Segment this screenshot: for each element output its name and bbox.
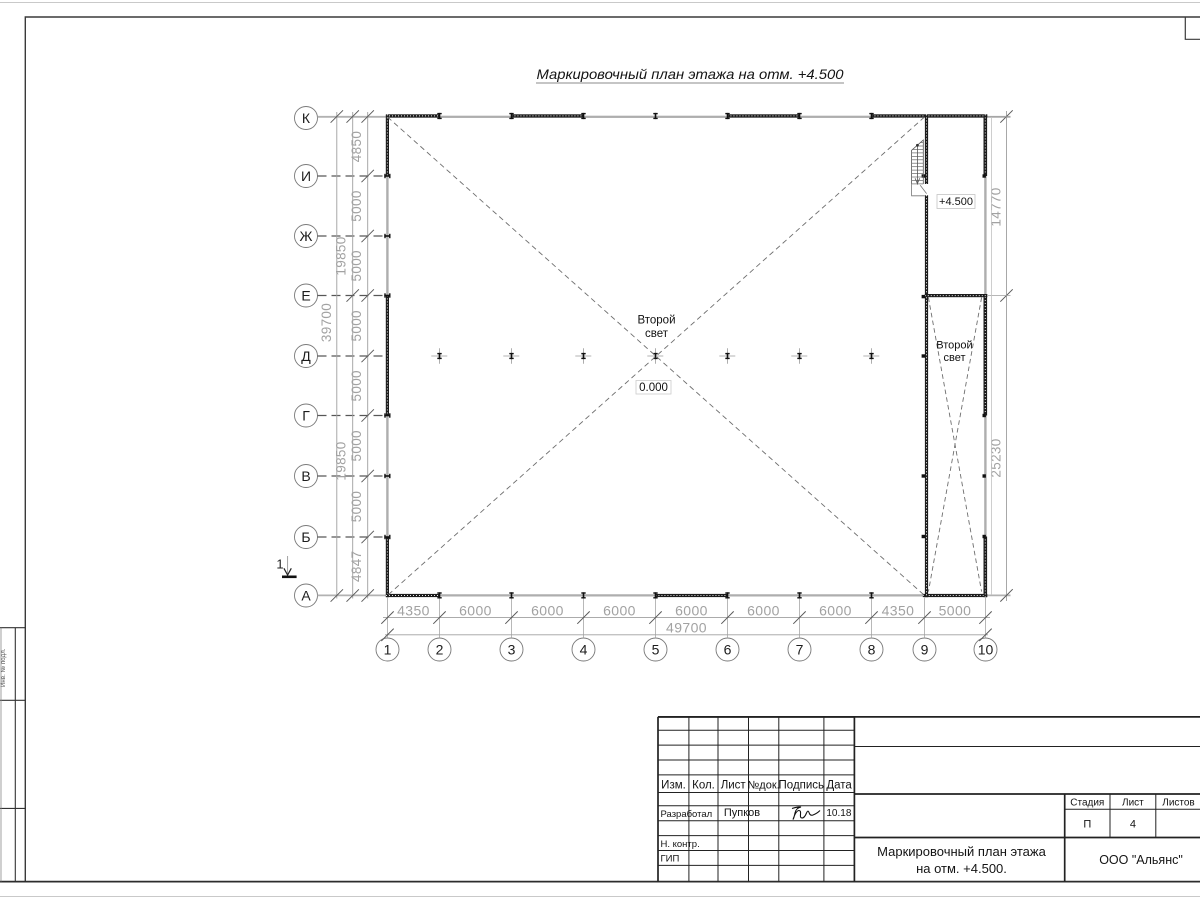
svg-text:ООО "Альянс": ООО "Альянс" (1099, 853, 1183, 867)
svg-text:Второй: Второй (637, 315, 675, 327)
svg-text:Пупков: Пупков (724, 807, 760, 819)
svg-text:Д: Д (301, 348, 311, 364)
svg-text:0.000: 0.000 (639, 382, 668, 394)
svg-text:Маркировочный план этажа на от: Маркировочный план этажа на отм. +4.500 (537, 66, 844, 82)
svg-text:И: И (301, 168, 311, 184)
svg-text:Второй: Второй (936, 340, 972, 352)
svg-text:6000: 6000 (603, 603, 636, 619)
svg-text:8: 8 (868, 642, 876, 658)
svg-text:5000: 5000 (939, 603, 972, 619)
svg-text:+4.500: +4.500 (939, 196, 973, 208)
svg-text:39700: 39700 (319, 303, 334, 342)
svg-text:Н. контр.: Н. контр. (661, 839, 700, 850)
svg-text:Г: Г (302, 408, 310, 424)
svg-text:5000: 5000 (349, 310, 364, 341)
svg-text:10: 10 (978, 642, 994, 658)
svg-text:5000: 5000 (349, 491, 364, 522)
svg-text:Кол.: Кол. (692, 779, 715, 791)
svg-text:5000: 5000 (349, 250, 364, 281)
svg-text:5000: 5000 (349, 190, 364, 221)
svg-text:П: П (1083, 819, 1091, 831)
svg-text:свет: свет (645, 328, 669, 340)
svg-text:14770: 14770 (989, 187, 1004, 226)
svg-text:4350: 4350 (882, 603, 915, 619)
svg-text:Изм.: Изм. (661, 779, 686, 791)
svg-text:2: 2 (436, 642, 444, 658)
svg-text:Стадия: Стадия (1070, 797, 1104, 808)
svg-text:Листов: Листов (1162, 797, 1195, 808)
svg-text:на отм. +4.500.: на отм. +4.500. (916, 861, 1007, 876)
svg-text:49700: 49700 (666, 620, 707, 636)
svg-text:6: 6 (724, 642, 732, 658)
svg-text:Ж: Ж (300, 228, 313, 244)
svg-text:5: 5 (652, 642, 660, 658)
svg-text:25230: 25230 (989, 438, 1004, 477)
svg-text:свет: свет (943, 352, 965, 364)
svg-text:Разработал: Разработал (661, 809, 713, 820)
svg-text:Инв. № подл.: Инв. № подл. (0, 648, 7, 687)
svg-text:4: 4 (580, 642, 588, 658)
svg-text:5000: 5000 (349, 370, 364, 401)
svg-text:4850: 4850 (349, 131, 364, 162)
svg-text:4: 4 (1130, 819, 1136, 831)
svg-text:19850: 19850 (334, 236, 349, 275)
svg-text:№док.: №док. (747, 779, 779, 791)
svg-text:Дата: Дата (826, 779, 852, 791)
svg-text:4350: 4350 (397, 603, 430, 619)
svg-text:3: 3 (508, 642, 516, 658)
svg-text:6000: 6000 (531, 603, 564, 619)
svg-text:А: А (301, 588, 311, 604)
svg-text:19850: 19850 (334, 441, 349, 480)
svg-text:В: В (301, 468, 310, 484)
svg-text:9: 9 (921, 642, 929, 658)
svg-text:Маркировочный план этажа: Маркировочный план этажа (877, 844, 1046, 859)
svg-text:Б: Б (301, 529, 310, 545)
svg-text:5000: 5000 (349, 430, 364, 461)
svg-text:Лист: Лист (1122, 797, 1144, 808)
svg-text:6000: 6000 (459, 603, 492, 619)
svg-text:7: 7 (796, 642, 804, 658)
svg-text:Е: Е (301, 288, 310, 304)
svg-text:Подпись: Подпись (779, 779, 825, 791)
svg-text:6000: 6000 (819, 603, 852, 619)
svg-text:Лист: Лист (721, 779, 747, 791)
svg-text:К: К (302, 110, 311, 126)
svg-text:1: 1 (276, 557, 283, 572)
svg-text:6000: 6000 (747, 603, 780, 619)
svg-text:ГИП: ГИП (661, 854, 680, 865)
svg-text:6000: 6000 (675, 603, 708, 619)
svg-text:4847: 4847 (349, 551, 364, 582)
svg-text:1: 1 (384, 642, 392, 658)
svg-text:10.18: 10.18 (826, 808, 851, 819)
